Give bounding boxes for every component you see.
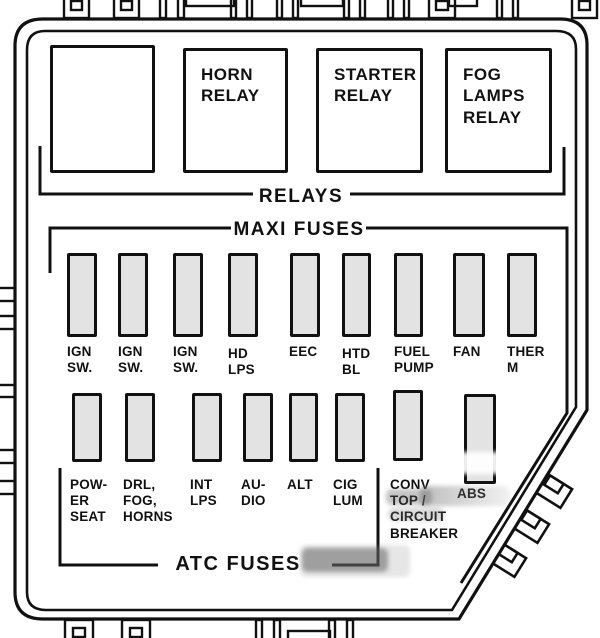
maxi-fuse [507, 253, 537, 337]
maxi-fuse [453, 253, 485, 337]
fuse-label: POW- ER SEAT [70, 477, 107, 526]
atc-fuses-section-label: ATC FUSES [162, 553, 314, 576]
relay-box-horn: HORN RELAY [183, 48, 288, 173]
maxi-fuses-section-label: MAXI FUSES [228, 219, 370, 241]
fuse-label: DRL, FOG, HORNS [123, 477, 173, 526]
relay-label: HORN RELAY [201, 64, 260, 107]
fuse-label: HD LPS [228, 346, 255, 378]
relay-box-starter: STARTER RELAY [316, 48, 423, 173]
relays-section-label: RELAYS [255, 186, 347, 208]
atc-fuse [289, 393, 318, 462]
relay-label: STARTER RELAY [334, 64, 417, 107]
maxi-fuse [67, 253, 97, 337]
relay-box-fog-lamps: FOG LAMPS RELAY [445, 48, 552, 173]
fuse-label: IGN SW. [173, 344, 198, 376]
maxi-fuse [228, 253, 258, 337]
maxi-fuse [394, 253, 423, 337]
fuse-label: IGN SW. [67, 344, 92, 376]
top-connector-tabs [64, 0, 597, 18]
fuse-label: FUEL PUMP [394, 344, 434, 376]
fuse-label: EEC [289, 344, 317, 360]
fuse-label: IGN SW. [118, 344, 143, 376]
print-smudge [450, 452, 510, 474]
fuse-label: INT LPS [190, 477, 217, 509]
fuse-label: AU- DIO [241, 477, 266, 509]
fuse-label: FAN [453, 344, 481, 360]
relay-label: FOG LAMPS RELAY [463, 64, 525, 128]
atc-fuse [393, 390, 423, 461]
maxi-fuse [118, 253, 148, 337]
atc-fuse [72, 393, 102, 462]
maxi-fuse [173, 253, 203, 337]
print-smudge [388, 508, 444, 521]
maxi-fuse [290, 253, 320, 337]
fuse-label: THER M [507, 344, 545, 376]
print-smudge [300, 545, 410, 577]
print-smudge [420, 486, 510, 506]
atc-fuse [243, 393, 273, 462]
bottom-connector-tabs [65, 620, 353, 638]
maxi-fuse [342, 253, 371, 337]
atc-fuse [335, 393, 365, 462]
atc-fuse [125, 393, 155, 462]
fuse-label: ALT [287, 477, 313, 493]
fuse-box-diagram: HORN RELAY STARTER RELAY FOG LAMPS RELAY… [0, 0, 600, 638]
atc-fuse [192, 393, 222, 462]
fuse-label: CIG LUM [333, 477, 363, 509]
print-smudge [386, 489, 432, 505]
relay-box-unlabeled [50, 45, 155, 173]
fuse-label: HTD BL [342, 346, 370, 378]
